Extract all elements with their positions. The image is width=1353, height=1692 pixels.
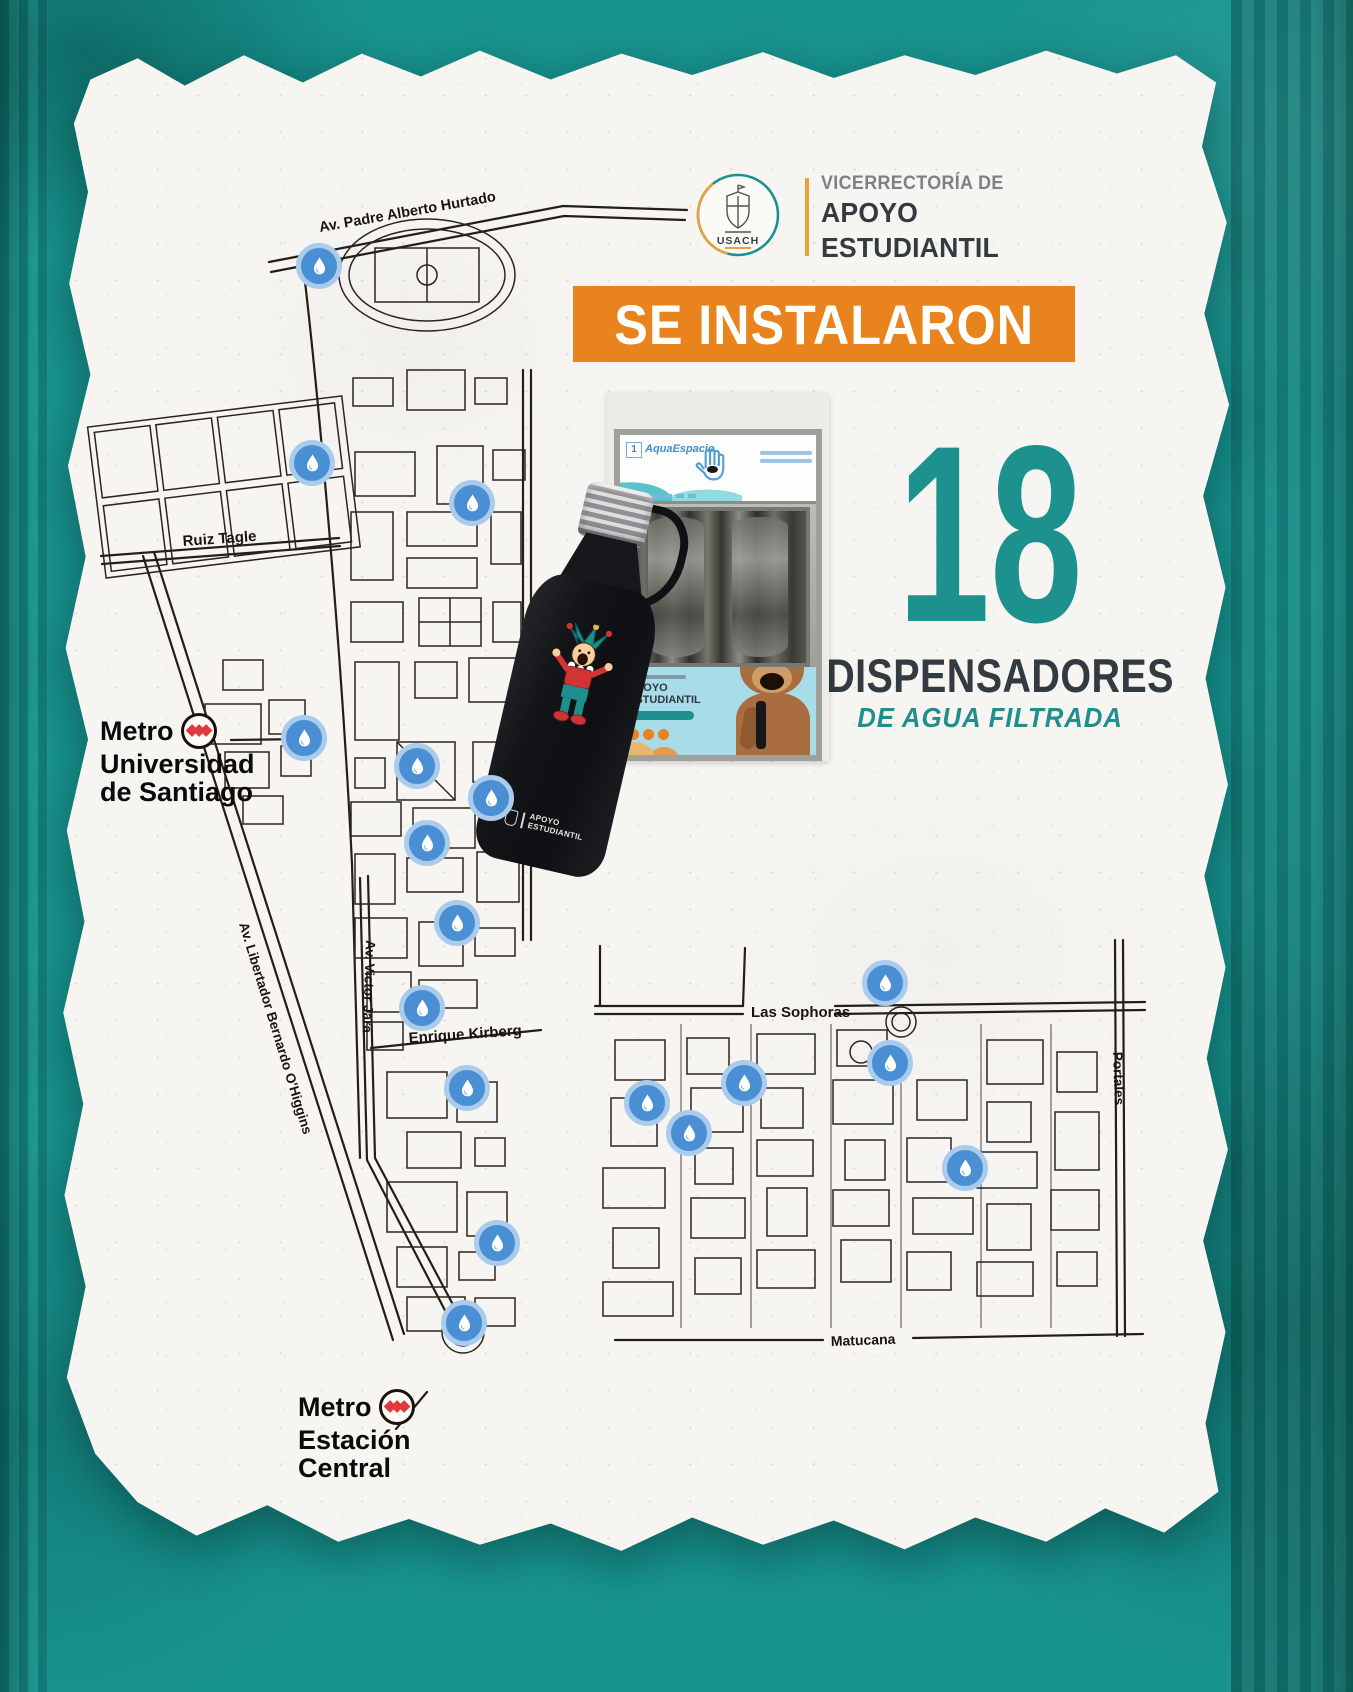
water-drop-icon: [874, 972, 897, 995]
marker-layer: [55, 40, 1235, 1560]
water-drop-icon: [416, 832, 439, 855]
water-drop-icon: [954, 1157, 977, 1180]
water-drop-marker: [281, 715, 327, 761]
water-drop-marker: [666, 1110, 712, 1156]
water-drop-marker: [942, 1145, 988, 1191]
water-drop-icon: [480, 787, 503, 810]
water-drop-marker: [867, 1040, 913, 1086]
water-drop-icon: [453, 1312, 476, 1335]
water-drop-icon: [678, 1122, 701, 1145]
water-drop-marker: [721, 1060, 767, 1106]
water-drop-marker: [449, 480, 495, 526]
water-drop-icon: [301, 452, 324, 475]
water-drop-marker: [434, 900, 480, 946]
water-drop-marker: [441, 1300, 487, 1346]
water-drop-icon: [411, 997, 434, 1020]
water-drop-marker: [474, 1220, 520, 1266]
water-drop-icon: [293, 727, 316, 750]
water-drop-marker: [289, 440, 335, 486]
water-drop-marker: [444, 1065, 490, 1111]
water-drop-icon: [446, 912, 469, 935]
water-drop-marker: [468, 775, 514, 821]
water-drop-icon: [406, 755, 429, 778]
water-drop-icon: [636, 1092, 659, 1115]
water-drop-marker: [862, 960, 908, 1006]
water-drop-marker: [624, 1080, 670, 1126]
poster-wrapper: Av. Padre Alberto Hurtado Ruiz Tagle El …: [55, 40, 1235, 1560]
water-drop-icon: [879, 1052, 902, 1075]
water-drop-icon: [461, 492, 484, 515]
water-drop-marker: [399, 985, 445, 1031]
water-drop-icon: [733, 1072, 756, 1095]
water-drop-marker: [296, 243, 342, 289]
water-drop-icon: [308, 255, 331, 278]
background-left-streaks: [0, 0, 48, 1692]
background-right-streaks: [1231, 0, 1353, 1692]
water-drop-icon: [456, 1077, 479, 1100]
water-drop-icon: [486, 1232, 509, 1255]
infographic-root: { "poster": { "header": { "logo_text": "…: [0, 0, 1353, 1692]
water-drop-marker: [394, 743, 440, 789]
torn-paper-poster: Av. Padre Alberto Hurtado Ruiz Tagle El …: [55, 40, 1235, 1560]
water-drop-marker: [404, 820, 450, 866]
